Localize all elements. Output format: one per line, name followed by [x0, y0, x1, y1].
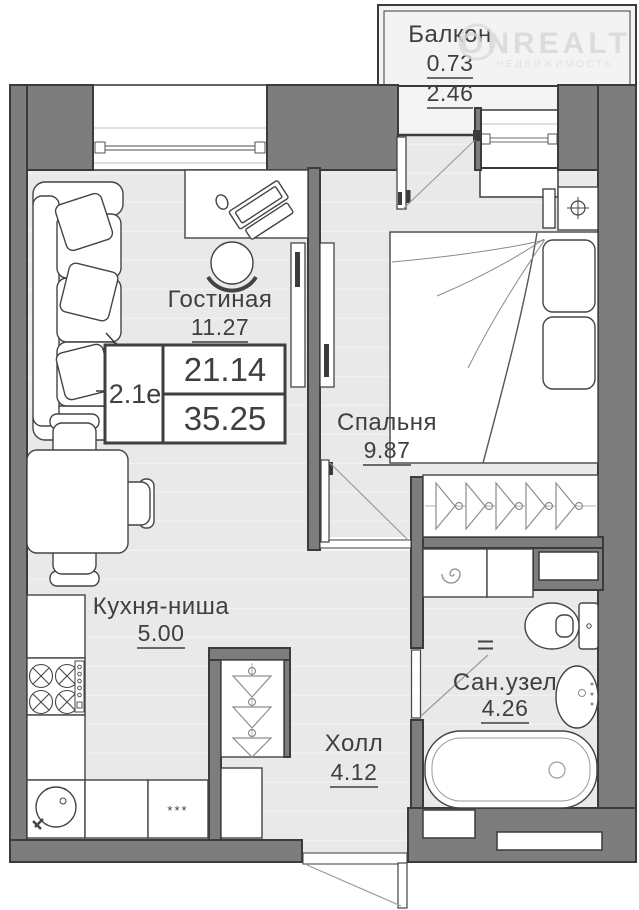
pillow [543, 240, 595, 312]
watermark-brand: ONREALT [460, 27, 631, 60]
wardrobe [423, 475, 598, 537]
bathroom-counter [487, 549, 533, 597]
stove [27, 658, 85, 715]
hall-closet [221, 660, 284, 757]
desk [185, 170, 308, 242]
unit-info-box: 2.1е 21.14 35.25 [96, 333, 285, 443]
bathroom-sink [556, 666, 598, 728]
kitchen-sink [27, 780, 85, 838]
svg-text:9.87: 9.87 [364, 437, 411, 463]
label-hall: Холл 4.12 [325, 730, 384, 787]
svg-text:Спальня: Спальня [337, 409, 437, 436]
desk-chair [208, 242, 256, 291]
shoe-cabinet [221, 768, 262, 838]
bathtub [425, 731, 597, 808]
washing-machine [423, 549, 487, 597]
svg-text:Сан.узел: Сан.узел [453, 669, 557, 696]
nightstand [543, 187, 598, 230]
svg-text:4.26: 4.26 [482, 695, 529, 721]
floor-plan-image: *** 2.1е 21.14 35.25 Балкон 0.73 2.46 Го… [0, 0, 639, 910]
svg-text:Кухня-ниша: Кухня-ниша [93, 593, 230, 620]
svg-text:4.12: 4.12 [331, 759, 378, 785]
unit-total-area: 35.25 [184, 400, 267, 437]
svg-text:11.27: 11.27 [191, 314, 249, 340]
unit-living-area: 21.14 [184, 351, 267, 388]
bedroom-window [480, 110, 558, 197]
watermark-tagline: НЕДВИЖИМОСТЬ [496, 59, 614, 70]
pillow [543, 317, 595, 389]
svg-text:5.00: 5.00 [138, 620, 185, 646]
floor-plan-svg: *** 2.1е 21.14 35.25 Балкон 0.73 2.46 Го… [0, 0, 639, 910]
living-room-window [93, 85, 267, 170]
svg-text:Гостиная: Гостиная [168, 286, 273, 313]
svg-text:Холл: Холл [325, 730, 384, 757]
svg-text:2.46: 2.46 [427, 80, 474, 106]
table-top [27, 450, 128, 553]
unit-type-label: 2.1е [109, 379, 162, 409]
kitchen-asterisks: *** [167, 803, 188, 818]
entry-door [303, 853, 407, 908]
toilet [525, 603, 598, 649]
